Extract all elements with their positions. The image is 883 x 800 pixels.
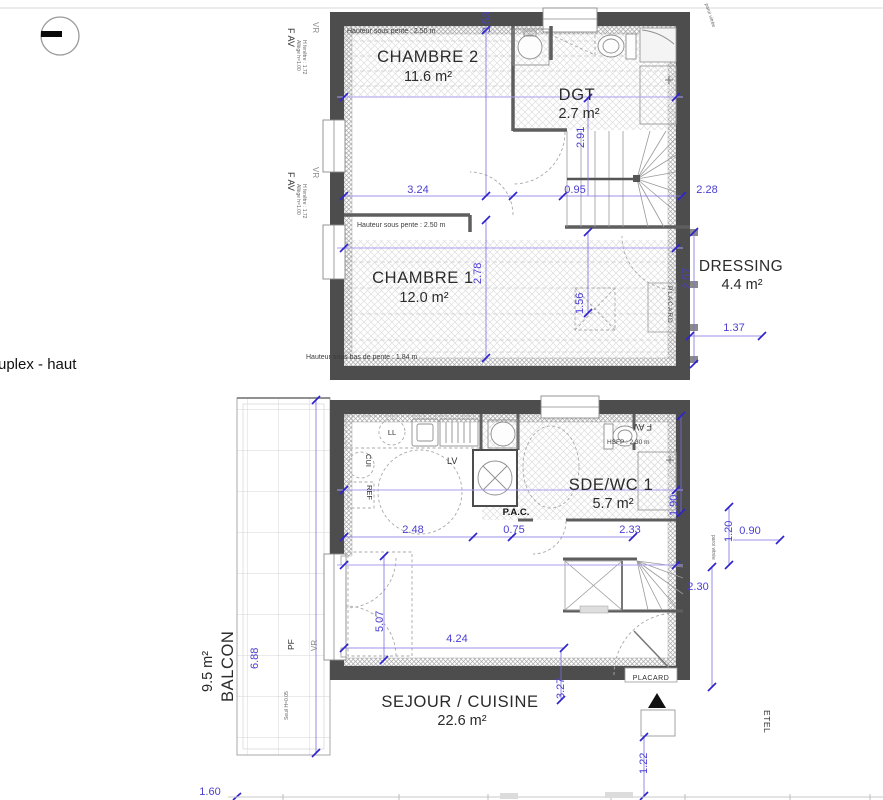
upper-window-labels-2: VR F AV Allège h=1.00 H fenêtre : 1.72 [286, 167, 320, 219]
vr-label-1: VR [311, 22, 320, 33]
dim-1-56: 1.56 [574, 293, 586, 314]
dim-5-07: 5.07 [374, 611, 386, 632]
dim-0-95: 0.95 [564, 184, 585, 196]
upper-window-labels-1: VR F AV Allège h=1.00 H fenêtre : 1.72 [286, 22, 320, 75]
dim-1-37: 1.37 [723, 322, 744, 334]
fav-label-1: F AV [286, 28, 296, 47]
upper-placard-label: PLACARD [666, 286, 673, 324]
dim-6-88: 6.88 [249, 648, 261, 669]
room-sejour-area: 22.6 m² [437, 713, 486, 729]
fav-sub1-1: Allège h=1.00 [295, 40, 301, 71]
cui-label: CUI [364, 454, 373, 467]
dim-0-75: 0.75 [503, 524, 524, 536]
room-sde-name: SDE/WC 1 [569, 476, 654, 494]
room-dressing-area: 4.4 m² [721, 277, 762, 293]
room-chambre1-area: 12.0 m² [399, 290, 448, 306]
upper-floor-plan: Hauteur sous pente : 2.50 m CHAMBRE 2 11… [286, 3, 783, 380]
room-sde-area: 5.7 m² [592, 496, 633, 512]
dim-1-20: 1.20 [723, 521, 735, 542]
fav-sub2-1: H fenêtre : 1.72 [301, 40, 307, 75]
dim-2-57: 2.57 [681, 268, 693, 289]
ll-label: LL [388, 428, 396, 437]
lower-placard-label: PLACARD [633, 675, 670, 682]
fav-sub1-2: Allège h=1.00 [295, 184, 301, 215]
dim-3-27: 3.27 [555, 678, 567, 699]
pac-unit [473, 450, 517, 506]
dim-2-28: 2.28 [696, 184, 717, 196]
hsfp-note: HSFP : 2.30 m [607, 439, 650, 446]
pac-label: P.A.C. [503, 507, 530, 518]
lower-fav-label: F AV [633, 422, 652, 432]
upper-window-left-1 [323, 120, 345, 172]
room-chambre2-name: CHAMBRE 2 [377, 48, 479, 66]
paroi-vitree-lower: paroi vitrée [710, 535, 716, 560]
room-sejour-name: SEJOUR / CUISINE [381, 693, 538, 711]
dim-2-91: 2.91 [575, 127, 587, 148]
dim-2-48: 2.48 [402, 524, 423, 536]
dgt-shower-icon [640, 28, 676, 124]
floorplan-drawing: uplex - haut [0, 0, 883, 800]
sink-unit-icon [412, 419, 438, 446]
dim-2-30: 2.30 [687, 581, 708, 593]
dim-2-33: 2.33 [619, 524, 640, 536]
lower-vr-label: VR [310, 640, 319, 651]
drainer-icon [440, 419, 478, 446]
lower-floor-plan: LL LV CUI REF P.A.C. SDE/WC 1 5.7 m² SEJ… [199, 396, 784, 800]
note-pente-mid: Hauteur sous pente : 2.50 m [357, 222, 445, 229]
ref-label: REF [365, 485, 374, 500]
dim-1-22: 1.22 [638, 753, 650, 774]
page-bottom-border [228, 792, 883, 800]
note-pente-top: Hauteur sous pente : 2.50 m [347, 28, 435, 35]
fav-sub2-2: H fenêtre : 1.72 [301, 184, 307, 219]
entrance-arrow-icon [648, 693, 666, 708]
entrance-marker-box [641, 710, 675, 736]
dim-0-90: 0.90 [739, 525, 760, 537]
room-balcon-area: 9.5 m² [200, 651, 216, 692]
dim-1-60: 1.60 [199, 786, 220, 798]
paroi-vitree-upper: paroi vitrée [703, 3, 716, 29]
room-chambre2-area: 11.6 m² [404, 69, 452, 85]
note-pente-bottom: Hauteur sous bas de pente : 1.84 m [306, 354, 417, 361]
lower-window-top [541, 396, 599, 418]
etel-label: ETEL [762, 710, 772, 733]
room-dgt-name: DGT [559, 86, 596, 104]
dgt-toilet-icon [598, 34, 636, 59]
dim-3-53: 3.53 [481, 12, 493, 33]
lower-staircase [563, 559, 683, 613]
dim-2-78: 2.78 [472, 263, 484, 284]
dim-1-90: 1.90 [668, 495, 680, 516]
fav-label-2: F AV [286, 172, 296, 191]
room-dressing-name: DRESSING [699, 258, 783, 275]
room-chambre1-name: CHAMBRE 1 [372, 269, 474, 287]
upper-window-left-2 [323, 225, 345, 279]
kitchen-counter [346, 416, 482, 534]
pf-label: PF [286, 639, 296, 650]
balcony-bay-window [324, 552, 412, 660]
lv-label: LV [447, 456, 457, 466]
sde-door-swing [533, 521, 566, 554]
plan-title: uplex - haut [0, 356, 77, 373]
dim-4-24: 4.24 [446, 633, 467, 645]
floorplan-page: uplex - haut [0, 0, 883, 800]
seuil-note: Seuil H=0.05 [284, 691, 290, 720]
room-balcon-name: BALCON [219, 631, 237, 702]
vr-label-2: VR [311, 167, 320, 178]
section-marker-icon [41, 17, 79, 55]
dim-3-24: 3.24 [407, 184, 428, 196]
room-dgt-area: 2.7 m² [558, 106, 599, 122]
